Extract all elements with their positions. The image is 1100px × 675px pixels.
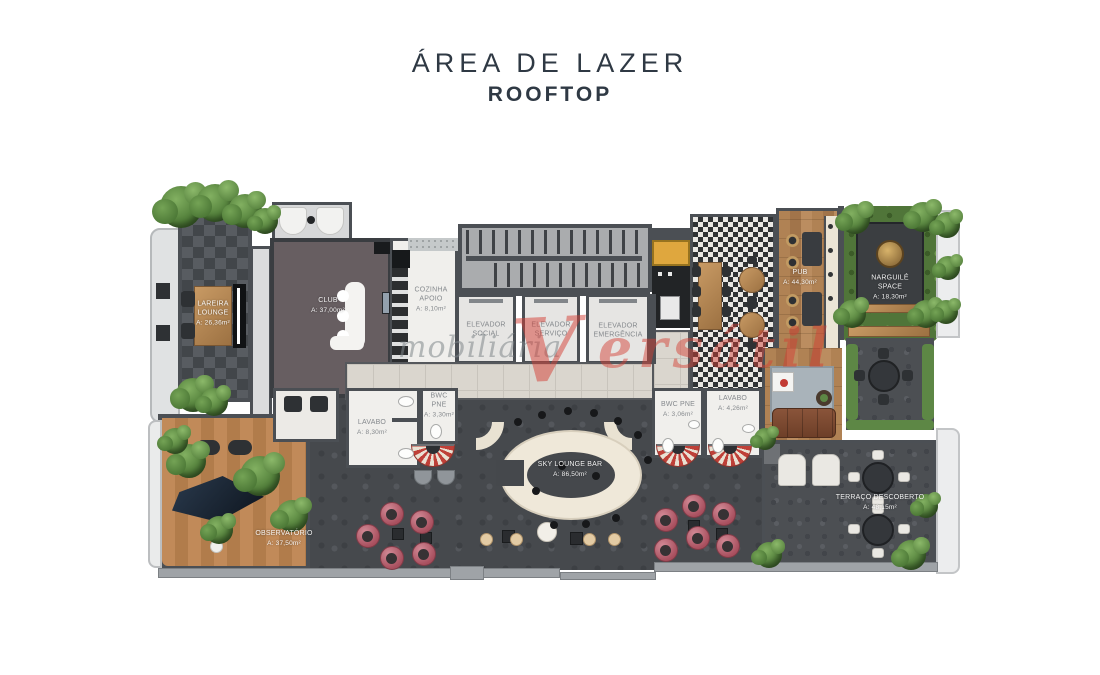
terrace-chair <box>848 524 860 534</box>
terrace-chair <box>872 450 884 460</box>
plant <box>756 542 782 568</box>
parapet-wall <box>158 568 560 578</box>
sink <box>688 420 700 429</box>
terrace-armchair <box>812 454 840 486</box>
bar-stool <box>612 514 620 522</box>
armchair <box>310 396 328 412</box>
pink-armchair <box>412 542 436 566</box>
nook-chair <box>854 370 865 381</box>
stair-landing-wall <box>466 256 642 261</box>
pink-armchair <box>410 510 434 534</box>
sink <box>742 424 755 433</box>
pub-stool <box>786 234 799 247</box>
portico-bench <box>279 207 307 235</box>
elevator-servico <box>522 294 580 364</box>
pub-round-table <box>739 267 765 293</box>
page-title: ÁREA DE LAZER ROOFTOP <box>0 48 1100 107</box>
side-table <box>570 532 583 545</box>
lareira-table <box>194 286 232 346</box>
pub-chair <box>722 266 731 277</box>
armchair <box>284 396 302 412</box>
balcony-planter <box>156 283 170 299</box>
bottle <box>828 272 833 277</box>
floor-plan-canvas: ÁREA DE LAZER ROOFTOP <box>0 0 1100 675</box>
club-cushion <box>337 310 349 322</box>
terrace-chair <box>898 524 910 534</box>
appliance-dot <box>658 272 662 276</box>
pub-chair <box>747 256 757 264</box>
parapet-wall <box>560 572 656 580</box>
bottle <box>828 248 833 253</box>
grass-strip <box>846 344 858 420</box>
club-tv-panel <box>382 292 390 314</box>
plant <box>934 212 960 238</box>
plant <box>252 208 278 234</box>
pink-armchair <box>654 538 678 562</box>
club-cushion <box>337 290 349 302</box>
sink <box>398 396 414 407</box>
nook-chair <box>902 370 913 381</box>
pink-armchair <box>356 524 380 548</box>
plant <box>205 516 233 544</box>
parapet-step <box>450 566 484 580</box>
terrace-chair <box>872 548 884 558</box>
elevator-emergencia <box>586 294 650 364</box>
terrace-chair <box>872 504 884 514</box>
pub-stool <box>786 316 799 329</box>
bar-opening <box>496 460 524 486</box>
coffee-station <box>652 266 690 328</box>
pub-stool <box>786 256 799 269</box>
pink-armchair <box>686 526 710 550</box>
sink <box>398 448 414 459</box>
pink-armchair <box>712 502 736 526</box>
pub-stool <box>786 294 799 307</box>
narguile-medallion <box>876 240 904 268</box>
bar-stool <box>582 520 590 528</box>
plant <box>936 256 960 280</box>
appliance-dot <box>668 272 672 276</box>
bar-stool <box>634 431 642 439</box>
sun-lounger <box>228 440 252 455</box>
kitchen-stove <box>392 250 410 268</box>
planter-leaves <box>820 394 828 402</box>
toilet <box>430 424 442 439</box>
terrace-chair <box>848 472 860 482</box>
pub-round-table <box>739 312 765 338</box>
fireplace <box>233 284 246 348</box>
lounge-side-table <box>772 372 794 392</box>
narguile-console <box>848 326 930 337</box>
side-table <box>392 528 404 540</box>
pub-chair <box>747 341 757 349</box>
bottle <box>828 296 833 301</box>
flower-decor <box>780 379 788 387</box>
club-sofa-seat <box>330 336 364 350</box>
plant <box>162 428 188 454</box>
wall-segment <box>652 228 690 240</box>
nook-chair <box>878 348 889 359</box>
terrace-table <box>862 462 894 494</box>
pub-long-table <box>698 262 722 330</box>
stair-flight-upper <box>466 230 642 254</box>
kitchen-appliance-strip <box>392 268 408 362</box>
bar-stool <box>532 487 540 495</box>
coffee-machine <box>660 296 680 320</box>
grass-strip <box>846 420 934 430</box>
bar-stool <box>564 407 572 415</box>
plant <box>276 500 308 532</box>
lounge-chair <box>181 291 195 307</box>
plant <box>840 204 870 234</box>
lounge-chair <box>181 323 195 339</box>
pub-chair <box>747 301 757 309</box>
grass-strip <box>922 344 934 420</box>
bar-stool <box>538 411 546 419</box>
plant <box>754 428 776 450</box>
pink-armchair <box>380 546 404 570</box>
bottle <box>828 224 833 229</box>
partition-wall <box>392 418 420 422</box>
elevator-door <box>599 299 636 303</box>
hall-corridor-right <box>652 330 690 392</box>
plant <box>896 540 926 570</box>
plant <box>934 300 958 324</box>
elevator-social <box>456 294 516 364</box>
toilet <box>662 438 674 453</box>
plant <box>838 300 866 328</box>
pouf <box>510 533 523 546</box>
bar-stool <box>514 418 522 426</box>
portico-table <box>307 216 315 224</box>
bar-stool <box>558 462 566 470</box>
pub-high-table <box>802 232 822 266</box>
pub-chair <box>722 306 731 317</box>
pouf <box>608 533 621 546</box>
elevator-door <box>469 299 504 303</box>
pouf <box>583 533 596 546</box>
pub-high-table <box>802 292 822 326</box>
vestibule-corridor <box>250 246 272 440</box>
sitting-vestibule <box>273 388 339 442</box>
toilet <box>712 438 724 453</box>
pub-chair <box>692 266 701 277</box>
title-line-1: ÁREA DE LAZER <box>0 48 1100 79</box>
terrace-table <box>862 514 894 546</box>
elevator-door <box>534 299 567 303</box>
nook-table <box>868 360 900 392</box>
wall-segment <box>650 294 656 364</box>
bar-stool <box>644 456 652 464</box>
pink-armchair <box>716 534 740 558</box>
lounge-planter <box>816 390 832 406</box>
bar-stool <box>590 409 598 417</box>
pink-armchair <box>654 508 678 532</box>
title-line-2: ROOFTOP <box>0 83 1100 107</box>
plant <box>200 388 228 416</box>
balcony-planter <box>156 325 170 341</box>
pink-armchair <box>380 502 404 526</box>
terrace-chair <box>898 472 910 482</box>
pub-bar-counter <box>824 216 838 348</box>
yellow-cabinet <box>652 240 690 266</box>
leather-sofa <box>772 408 836 438</box>
pub-chair <box>692 286 701 297</box>
club-cabinet <box>374 242 390 254</box>
pouf <box>480 533 493 546</box>
nook-chair <box>878 394 889 405</box>
fireplace-flame-strip <box>237 288 240 344</box>
bar-stool <box>550 521 558 529</box>
pub-chair <box>722 286 731 297</box>
stair-flight-lower <box>494 263 642 287</box>
kitchen-counter-top <box>408 238 458 251</box>
terrace-armchair <box>778 454 806 486</box>
portico-bench <box>316 207 344 235</box>
pink-armchair <box>682 494 706 518</box>
plant <box>914 494 938 518</box>
bar-stool <box>592 472 600 480</box>
pub-chair <box>692 306 701 317</box>
bar-stool <box>614 417 622 425</box>
plant <box>240 456 280 496</box>
bar-inner-floor <box>527 452 615 498</box>
